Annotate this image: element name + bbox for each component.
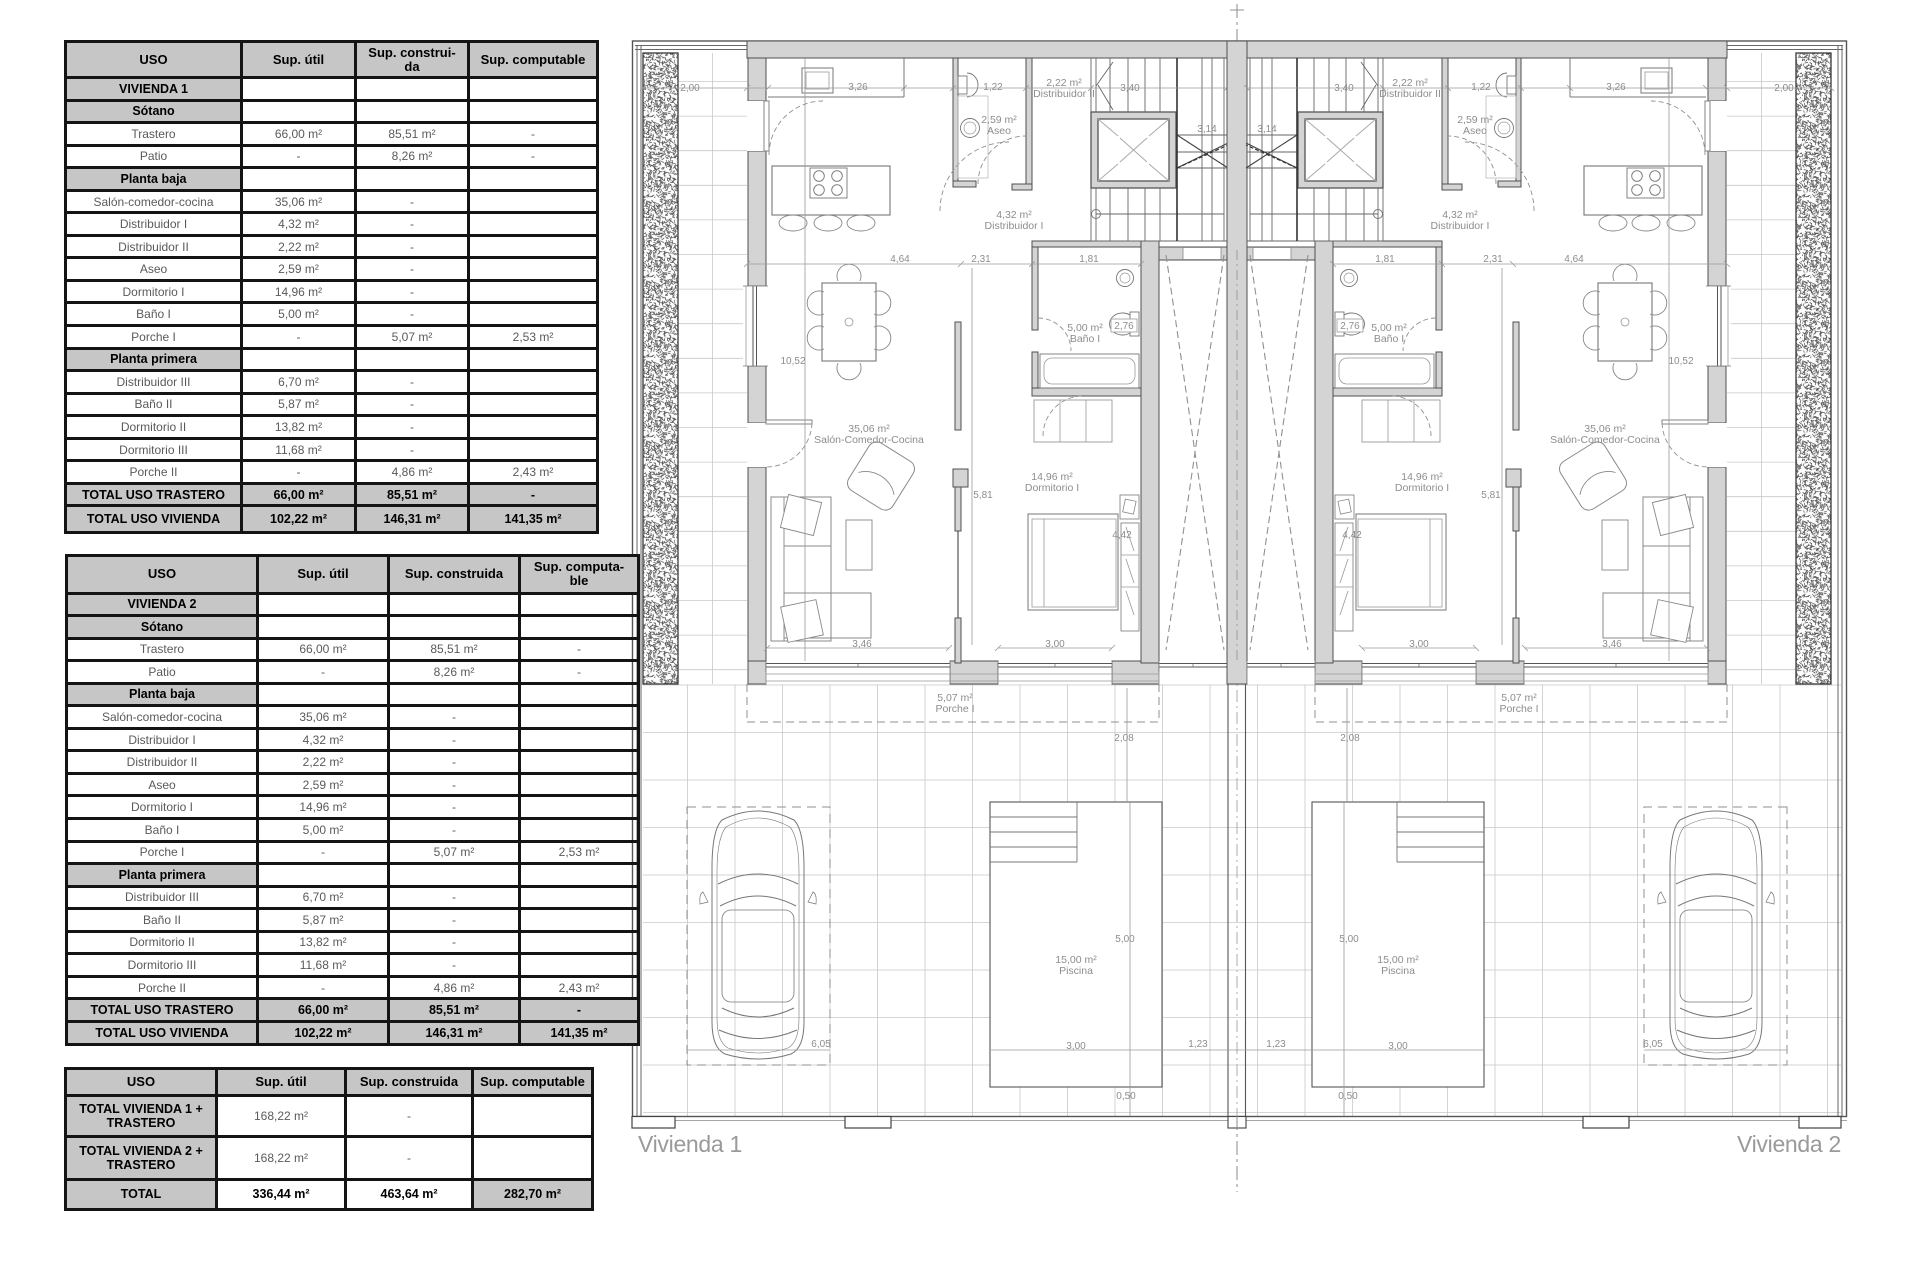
svg-text:4,42: 4,42 [1342, 530, 1362, 541]
svg-text:1,23: 1,23 [1266, 1039, 1286, 1050]
svg-text:4,64: 4,64 [890, 254, 910, 265]
svg-text:3,40: 3,40 [1334, 83, 1354, 94]
svg-text:3,26: 3,26 [1606, 82, 1626, 93]
svg-text:4,42: 4,42 [1112, 530, 1132, 541]
svg-text:Dormitorio I: Dormitorio I [1395, 482, 1449, 494]
svg-text:3,14: 3,14 [1257, 124, 1277, 135]
svg-text:6,05: 6,05 [811, 1039, 831, 1050]
svg-text:Porche I: Porche I [1499, 703, 1538, 715]
svg-text:Aseo: Aseo [987, 125, 1011, 137]
svg-text:1,81: 1,81 [1079, 254, 1099, 265]
svg-text:2,76: 2,76 [1114, 321, 1134, 332]
svg-text:3,46: 3,46 [852, 639, 872, 650]
svg-text:10,52: 10,52 [780, 356, 805, 367]
svg-text:5,81: 5,81 [973, 490, 993, 501]
svg-text:Vivienda 2: Vivienda 2 [1737, 1131, 1841, 1157]
svg-text:Dormitorio I: Dormitorio I [1025, 482, 1079, 494]
svg-text:2,08: 2,08 [1114, 733, 1134, 744]
svg-text:3,00: 3,00 [1045, 639, 1065, 650]
svg-text:2,08: 2,08 [1340, 733, 1360, 744]
svg-text:Baño I: Baño I [1070, 333, 1100, 345]
svg-text:1,23: 1,23 [1188, 1039, 1208, 1050]
svg-text:Piscina: Piscina [1381, 965, 1415, 977]
svg-text:2,00: 2,00 [1774, 83, 1794, 94]
svg-text:Salón-Comedor-Cocina: Salón-Comedor-Cocina [1550, 434, 1660, 446]
svg-text:2,00: 2,00 [680, 83, 700, 94]
svg-text:Baño I: Baño I [1374, 333, 1404, 345]
svg-text:5,81: 5,81 [1481, 490, 1501, 501]
svg-text:2,31: 2,31 [1483, 254, 1503, 265]
svg-text:3,26: 3,26 [848, 82, 868, 93]
svg-text:3,00: 3,00 [1409, 639, 1429, 650]
svg-text:Aseo: Aseo [1463, 125, 1487, 137]
svg-text:Porche I: Porche I [935, 703, 974, 715]
svg-text:Distribuidor II: Distribuidor II [1033, 88, 1095, 100]
svg-text:1,81: 1,81 [1375, 254, 1395, 265]
svg-text:5,00: 5,00 [1115, 934, 1135, 945]
svg-text:6,05: 6,05 [1643, 1039, 1663, 1050]
svg-text:0,50: 0,50 [1338, 1091, 1358, 1102]
svg-text:Distribuidor I: Distribuidor I [985, 220, 1044, 232]
svg-text:3,46: 3,46 [1602, 639, 1622, 650]
svg-text:4,64: 4,64 [1564, 254, 1584, 265]
svg-text:1,22: 1,22 [983, 82, 1003, 93]
svg-text:Distribuidor II: Distribuidor II [1379, 88, 1441, 100]
svg-text:1,22: 1,22 [1471, 82, 1491, 93]
svg-text:2,76: 2,76 [1340, 321, 1360, 332]
svg-text:5,00: 5,00 [1339, 934, 1359, 945]
svg-text:0,50: 0,50 [1116, 1091, 1136, 1102]
svg-text:Vivienda 1: Vivienda 1 [638, 1131, 742, 1157]
svg-text:Piscina: Piscina [1059, 965, 1093, 977]
svg-text:3,14: 3,14 [1197, 124, 1217, 135]
svg-text:3,40: 3,40 [1120, 83, 1140, 94]
svg-text:3,00: 3,00 [1388, 1041, 1408, 1052]
svg-text:Salón-Comedor-Cocina: Salón-Comedor-Cocina [814, 434, 924, 446]
svg-text:Distribuidor I: Distribuidor I [1431, 220, 1490, 232]
svg-text:10,52: 10,52 [1668, 356, 1693, 367]
svg-text:3,00: 3,00 [1066, 1041, 1086, 1052]
svg-text:2,31: 2,31 [971, 254, 991, 265]
